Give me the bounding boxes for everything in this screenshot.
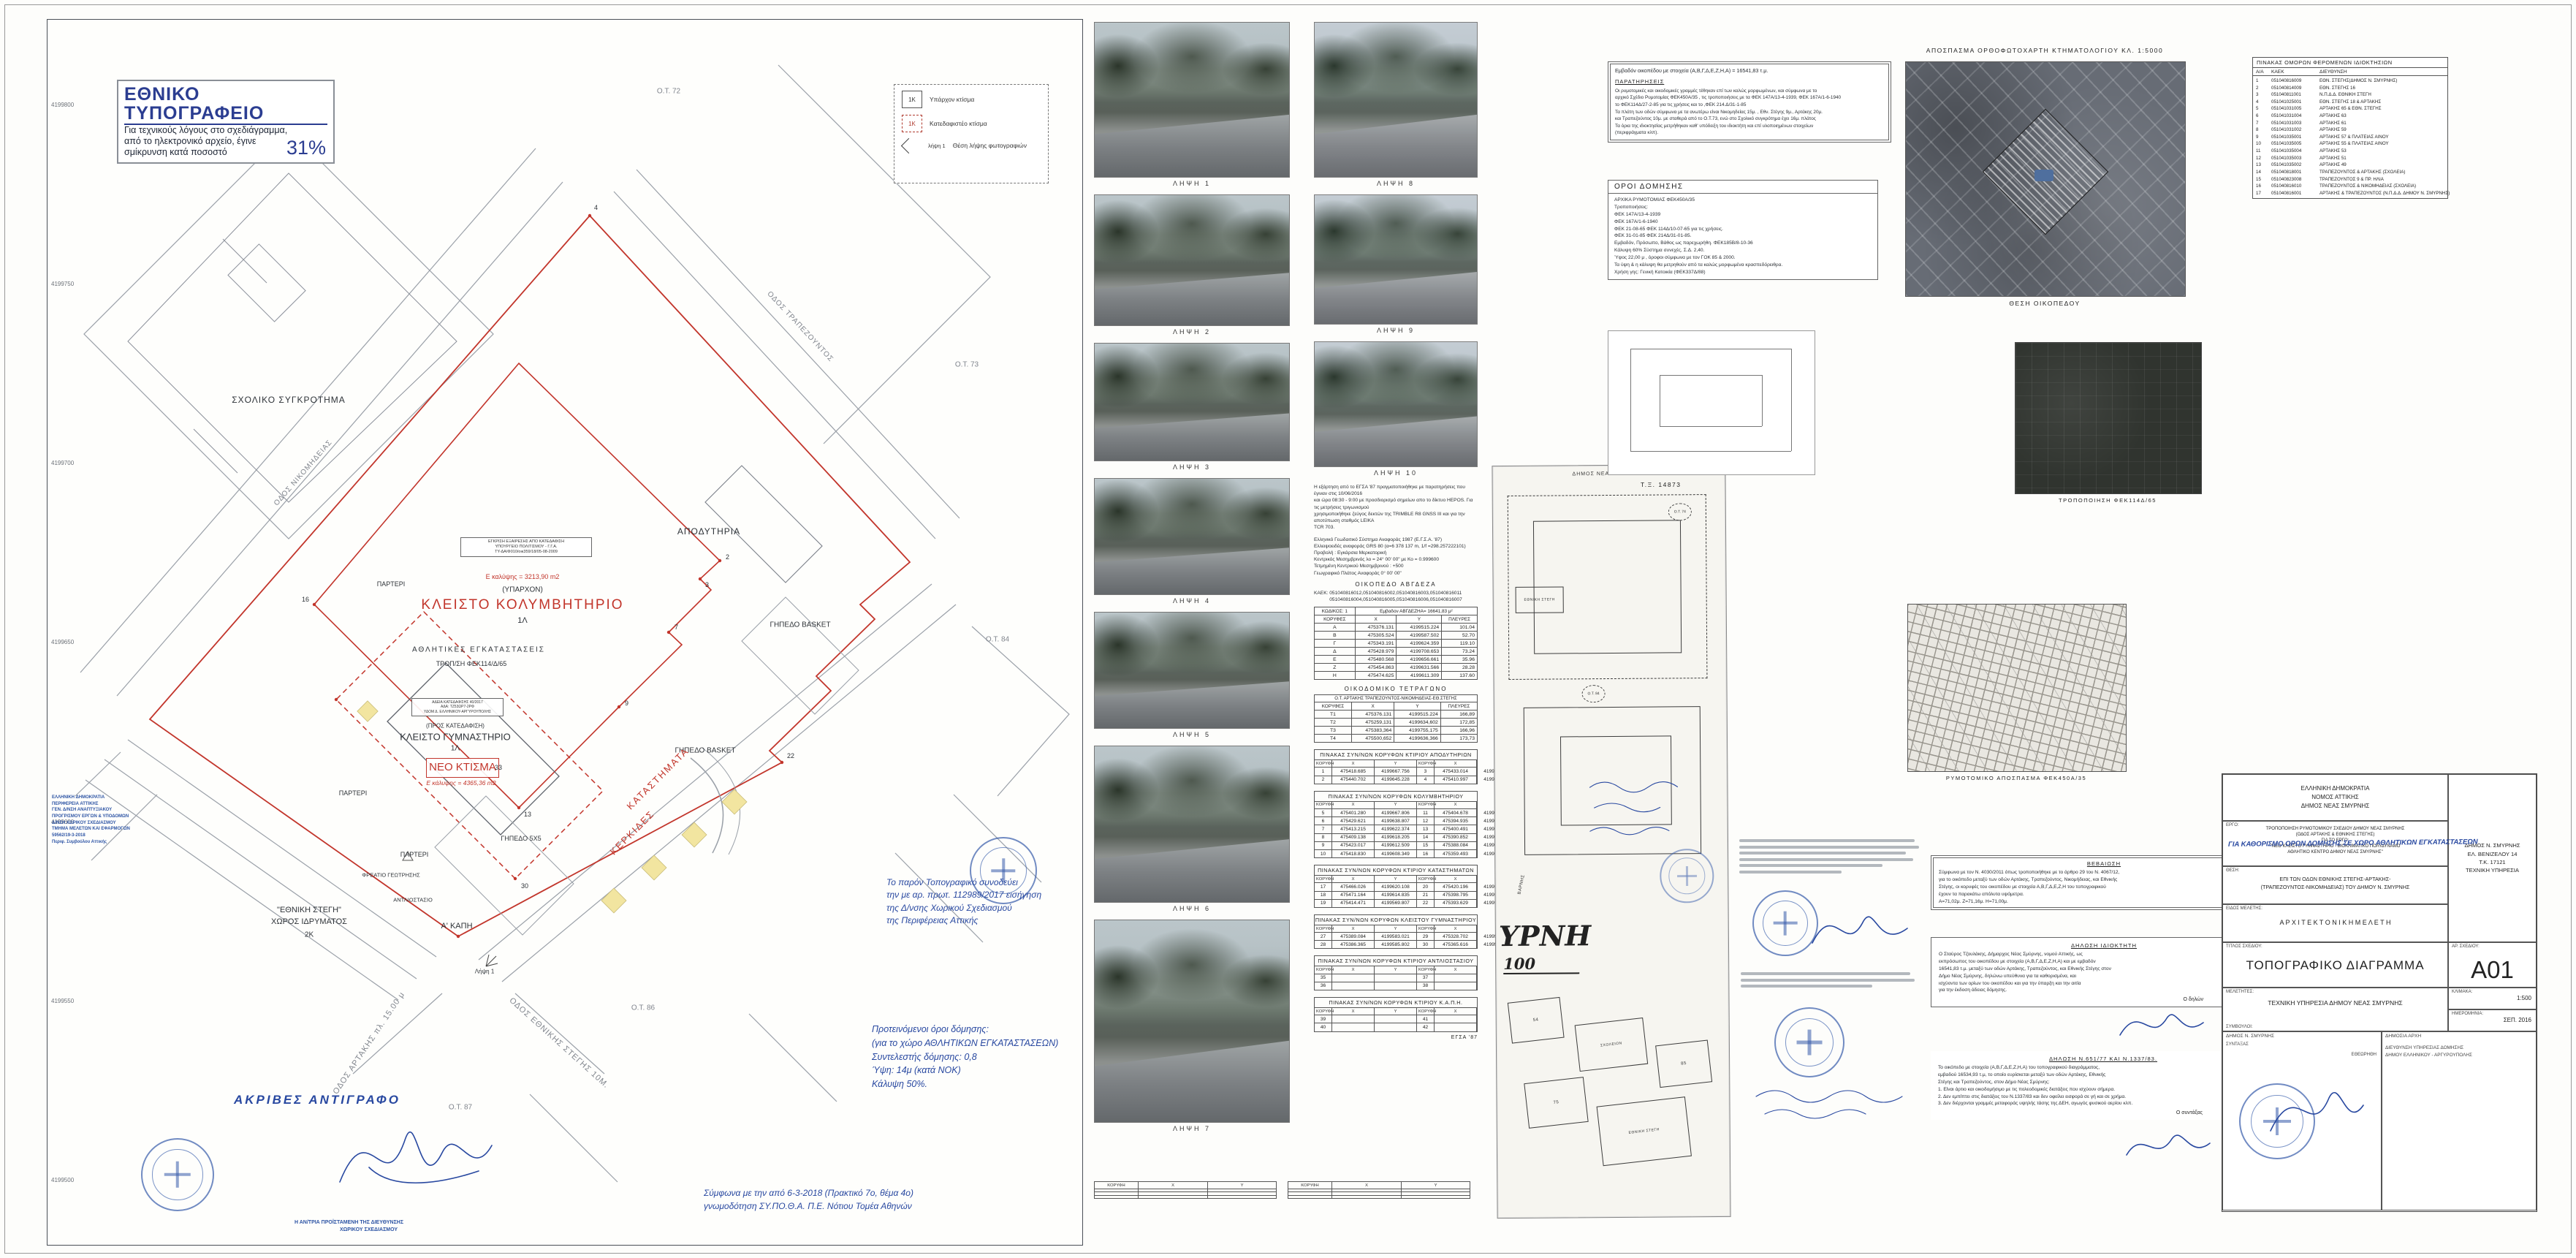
vertex-number: 4: [594, 204, 598, 211]
note-line: Ύψη: 14μ (κατά ΝΟΚ): [872, 1064, 1058, 1077]
vertex-row: 10475418.830 4199608.34916 475359.493419…: [1314, 849, 1478, 858]
office-line: 59562/19-3-2018: [52, 833, 162, 839]
project-line: ΤΡΟΠΟΠΟΙΗΣΗ ΡΥΜΟΤΟΜΙΚΟΥ ΣΧΕΔΙΟΥ ΔΗΜΟΥ ΝΕ…: [2223, 826, 2447, 832]
photo-item: ΛΗΨΗ 7: [1094, 920, 1290, 1132]
vertex-table: ΠΙΝΑΚΑΣ ΣΥΝ/ΝΩΝ ΚΟΡΥΦΩΝ ΚΤΙΡΙΟΥ ΑΝΤΛΙΟΣΤ…: [1314, 955, 1478, 990]
adjacent-row: 8 051041031002 ΑΡΤΑΚΗΣ 59: [2253, 126, 2447, 134]
vertex-table: ΠΙΝΑΚΑΣ ΣΥΝ/ΝΩΝ ΚΟΡΥΦΩΝ ΚΟΛΥΜΒΗΤΗΡΙΟΥ ΚΟ…: [1314, 791, 1478, 858]
owner-line: ΤΕΧΝΙΚΗ ΥΠΗΡΕΣΙΑ: [2449, 866, 2536, 874]
block-coordinates-table: Ο.Τ. ΑΡΤΑΚΗΣ ΤΡΑΠΕΖΟΥΝΤΟΣ-ΝΙΚΟΜΗΔΕΙΑΣ-ΕΘ…: [1314, 694, 1478, 743]
date-label: ΗΜΕΡΟΜΗΝΙΑ:: [2452, 1012, 2483, 1016]
note-line: Προτεινόμενοι όροι δόμησης:: [872, 1023, 1058, 1037]
grid-label: 4199750: [51, 281, 74, 287]
adjacent-row: 17 051040816001 ΑΡΤΑΚΗΣ & ΤΡΑΠΕΖΟΥΝΤΟΣ (…: [2253, 190, 2447, 197]
photo-item: ΛΗΨΗ 4: [1094, 478, 1290, 605]
note-line: (για το χώρο ΑΘΛΗΤΙΚΩΝ ΕΓΚΑΤΑΣΤΑΣΕΩΝ): [872, 1037, 1058, 1050]
datum-line: Κεντρικός Μεσημβρινός λο = 24° 00' 00" μ…: [1314, 556, 1478, 563]
exemption-approval-box: ΕΓΚΡΙΣΗ ΕΞΑΙΡΕΣΗΣ ΑΠΟ ΚΑΤΕΔΑΦΙΣΗ ΥΠΟΥΡΓΕ…: [460, 537, 592, 557]
photo-caption: ΛΗΨΗ 10: [1314, 469, 1478, 477]
declaration-line: ισχύοντα των ορίων του οικοπέδου και για…: [1939, 980, 2269, 988]
vertex-table-header: ΚΟΡΥΦΗX YΚΟΡΥΦΗ XY: [1314, 1007, 1478, 1015]
parcel-row: Ε475480.5684199656.66135.96: [1315, 656, 1478, 664]
old-school-label: ΣΧΟΛΕΙΟΝ: [1600, 1041, 1622, 1047]
adjacent-row: 10 051041035005 ΑΡΤΑΚΗΣ 55 & ΠΛΑΤΕΙΑΣ ΑΙ…: [2253, 140, 2447, 148]
authors-value: ΤΕΧΝΙΚΗ ΥΠΗΡΕΣΙΑ ΔΗΜΟΥ ΝΕΑΣ ΣΜΥΡΝΗΣ: [2223, 999, 2447, 1008]
author-role: ΣΥΝΤΑΞΑΣ: [2226, 1042, 2249, 1047]
note-line: Το παρόν Τοπογραφικό συνοδεύει: [886, 876, 1041, 889]
pool-building-label: ΚΛΕΙΣΤΟ ΚΟΛΥΜΒΗΤΗΡΙΟ: [421, 597, 623, 613]
mini-row: [1094, 1189, 1277, 1191]
vertex-table-title: ΠΙΝΑΚΑΣ ΣΥΝ/ΝΩΝ ΚΟΡΥΦΩΝ ΚΟΛΥΜΒΗΤΗΡΙΟΥ: [1314, 791, 1478, 801]
vertex-row: 9475423.017 4199612.50915 475388.0844199…: [1314, 841, 1478, 849]
agency-line: ΔΗΜΟΣ ΝΕΑΣ ΣΜΥΡΝΗΣ: [2223, 802, 2447, 811]
parcel-coordinates-table: ΚΩΔΙΚΟΣ: 1 Εμβαδον ΑΒΓΔΕΖΗΑ= 16641,83 μ²…: [1314, 607, 1478, 680]
photo-caption: ΛΗΨΗ 2: [1094, 328, 1290, 336]
illegible-text-line: [1739, 864, 1882, 867]
datum-line: Γεωγραφικό Πλάτος Αναφοράς 0° 00' 00": [1314, 570, 1478, 577]
illegible-text-line: [1739, 858, 1913, 861]
photo-item: ΛΗΨΗ 3: [1094, 343, 1290, 471]
adjacent-row: 3 051040811001 Ν.Π.Δ.Δ. ΕΘΝΙΚΗ ΣΤΕΓΗ: [2253, 91, 2447, 99]
drawing-title-label: ΤΙΤΛΟΣ ΣΧΕΔΙΟΥ:: [2226, 944, 2262, 949]
block-subtitle: Ο.Τ. ΑΡΤΑΚΗΣ ΤΡΑΠΕΖΟΥΝΤΟΣ-ΝΙΚΟΜΗΔΕΙΑΣ-ΕΘ…: [1315, 695, 1478, 702]
declaration-line: Δήμο Νέας Σμύρνης, δηλώνω υπεύθυνα για τ…: [1939, 973, 2269, 980]
observation-line: αρχικό Σχέδιο Ρυμοτομίας ΦΕΚ450Α/35 , τι…: [1615, 94, 1884, 102]
round-stamp: [1660, 849, 1714, 903]
author-org: ΔΗΜΟΣ Ν. ΣΜΥΡΝΗΣ: [2226, 1034, 2274, 1039]
note-line: της Περιφέρειας Αττικής: [886, 914, 1041, 927]
vertex-number: 9: [625, 700, 628, 707]
scale-cell: ΚΛΙΜΑΚΑ: 1:500: [2448, 988, 2537, 1009]
drawing-title: ΤΟΠΟΓΡΑΦΙΚΟ ΔΙΑΓΡΑΜΜΑ: [2223, 956, 2447, 975]
grid-label: 4199550: [51, 998, 74, 1004]
pump-station-label: ΑΝΤΛΙΟΣΤΑΣΙΟ: [393, 897, 433, 903]
adjacent-row: 11 051041035004 ΑΡΤΑΚΗΣ 53: [2253, 148, 2447, 155]
vertex-row: 17475466.026 4199620.10820 475420.196419…: [1314, 882, 1478, 890]
certification-line: Σύμφωνα με τον Ν. 4030/2011 όπως τροποπο…: [1939, 869, 2269, 876]
project-label: ΕΡΓΟ:: [2226, 823, 2239, 827]
adjacent-row: 9 051041035001 ΑΡΤΑΚΗΣ 57 & ΠΛΑΤΕΙΑΣ ΑΙΝ…: [2253, 134, 2447, 141]
adjacent-row: 13 051041035002 ΑΡΤΑΚΗΣ 49: [2253, 162, 2447, 169]
signatory-title-line2: ΧΩΡΙΚΟΥ ΣΧΕΔΙΑΣΜΟΥ: [340, 1227, 398, 1232]
printing-office-notice: ΕΘΝΙΚΟ ΤΥΠΟΓΡΑΦΕΙΟ Για τεχνικούς λόγους …: [117, 80, 335, 164]
engineer-declaration-line: Στέγης και Τραπεζούντος, στον Δήμο Νέας …: [1938, 1079, 2268, 1086]
building-terms-line: Ύψος 22,00 μ , όροφοι σύμφωνα με τον ΓΟΚ…: [1614, 254, 1872, 262]
reduction-percent: 31%: [286, 137, 326, 159]
block-label-ot73: Ο.Τ. 73: [955, 361, 979, 369]
date-cell: ΗΜΕΡΟΜΗΝΙΑ: ΣΕΠ. 2016: [2448, 1009, 2537, 1031]
owner-cell: ΔΗΜΟΣ Ν. ΣΜΥΡΝΗΣΕΛ. ΒΕΝΙΖΕΛΟΥ 14Τ.Κ. 171…: [2448, 774, 2537, 942]
declarant-signoff: Ο δηλών: [1939, 997, 2269, 1002]
photo-column-left: ΛΗΨΗ 1 ΛΗΨΗ 2 ΛΗΨΗ 3 ΛΗΨΗ 4 ΛΗΨΗ 5: [1094, 22, 1290, 1140]
planter-label: ΠΑΡΤΕΡΙ: [339, 789, 368, 797]
survey-line: Η εξάρτηση από το ΕΓΣΑ '87 πραγματοποιήθ…: [1314, 484, 1478, 497]
note-line: Συντελεστής δόμησης: 0,8: [872, 1050, 1058, 1064]
handwritten-annotation: [1750, 1082, 1911, 1126]
old-block-75: 75: [1553, 1100, 1559, 1105]
author-signature-cell: ΔΗΜΟΣ Ν. ΣΜΥΡΝΗΣ ΣΥΝΤΑΞΑΣ ΕΘΕΩΡΗΘΗ: [2222, 1031, 2382, 1210]
ethniki-stegi-label: "ΕΘΝΙΚΗ ΣΤΕΓΗ": [277, 906, 341, 914]
grid-label: 4199700: [51, 460, 74, 466]
vertex-number: 2: [726, 553, 729, 561]
photo-caption: ΛΗΨΗ 9: [1314, 327, 1478, 334]
photo-item: ΛΗΨΗ 10: [1314, 341, 1478, 477]
handwritten-note-terms: Προτεινόμενοι όροι δόμησης:(για το χώρο …: [872, 1023, 1058, 1091]
photo-position-icon: [902, 139, 921, 152]
orthophoto-title: ΑΠΟΣΠΑΣΜΑ ΟΡΘΟΦΩΤΟΧΑΡΤΗ ΚΤΗΜΑΤΟΛΟΓΙΟΥ ΚΛ…: [1905, 47, 2184, 54]
illegible-text-line: [1739, 846, 1919, 849]
vertex-table: ΠΙΝΑΚΑΣ ΣΥΝ/ΝΩΝ ΚΟΡΥΦΩΝ ΚΤΙΡΙΟΥ Κ.Α.Π.Η.…: [1314, 997, 1478, 1032]
vertex-tables: ΠΙΝΑΚΑΣ ΣΥΝ/ΝΩΝ ΚΟΡΥΦΩΝ ΚΤΙΡΙΟΥ ΑΠΟΔΥΤΗΡ…: [1314, 749, 1478, 1031]
grid-coordinate-labels: 4199800419975041997004199650419960041995…: [51, 102, 74, 1183]
drawing-sheet: 4199800419975041997004199650419960041995…: [0, 0, 2576, 1258]
mini-table-left: ΚΟΡΥΦΗ X Y: [1094, 1181, 1277, 1199]
old-ot74: Ο.Τ. 74: [1668, 503, 1692, 520]
agency-line: ΕΛΛΗΝΙΚΗ ΔΗΜΟΚΡΑΤΙΑ: [2223, 784, 2447, 793]
grid-label: 4199800: [51, 102, 74, 108]
building-terms-line: Κάλυψη 60% Σύστημα συνεχές, Σ.Δ. 2,40.: [1614, 247, 1872, 254]
round-stamp: [141, 1138, 214, 1211]
existing-building-symbol: 1Κ: [902, 91, 922, 108]
stegi-floors-label: 2Κ: [305, 931, 314, 939]
vertex-number: 3: [705, 581, 709, 588]
note-line: την με αρ. πρωτ. 112989/2017 εισήγηση: [886, 889, 1041, 901]
vertex-row: 36 38: [1314, 982, 1478, 990]
vertex-rows: 1475418.685 4199667.7563 475433.01441996…: [1314, 767, 1478, 784]
signature: [2121, 1124, 2216, 1168]
signatory-title-line1: Η ΑΝ/ΤΡΙΑ ΠΡΟΪΣΤΑΜΕΝΗ ΤΗΣ ΔΙΕΥΘΥΝΣΗΣ: [295, 1220, 403, 1225]
building-terms-line: ΦΕΚ 31-01-85 ΦΕΚ 214Δ/31-01-85.: [1614, 232, 1872, 240]
topographic-map-panel: 4199800419975041997004199650419960041995…: [47, 19, 1083, 1246]
notice-line: Για τεχνικούς λόγους στο σχεδιάγραμμα,: [124, 125, 327, 136]
block-row: Τ4475500,6524199636,366173,73: [1315, 735, 1478, 743]
handwritten-annotation: [1582, 772, 1707, 860]
signature: [325, 1094, 501, 1219]
vertex-table-header: ΚΟΡΥΦΗX YΚΟΡΥΦΗ XY: [1314, 759, 1478, 767]
vertex-number: 22: [787, 752, 794, 759]
office-line: ΠΡΟΓΡ/ΣΜΟΥ ΕΡΓΩΝ & ΥΠΟΔΟΜΩΝ: [52, 814, 162, 820]
datum-caption: ΕΓΣΑ '87: [1314, 1035, 1478, 1040]
office-line: ΤΜΗΜΑ ΜΕΛΕΤΩΝ ΚΑΙ ΕΦΑΡΜΟΓΩΝ: [52, 826, 162, 833]
datum-line: Τετμημένη Κεντρικού Μεσημβρινού : +500: [1314, 563, 1478, 569]
vertex-rows: 5475401.280 4199667.80611 475404.6784199…: [1314, 808, 1478, 858]
photo-item: ΛΗΨΗ 2: [1094, 194, 1290, 336]
approval-line: ΥΠΟΥΡΓΕΙΟ ΠΟΛΙΤΙΣΜΟΥ - Γ.Γ.Α.: [463, 545, 589, 550]
vertex-table-title: ΠΙΝΑΚΑΣ ΣΥΝ/ΝΩΝ ΚΟΡΥΦΩΝ ΚΤΙΡΙΟΥ ΚΑΤΑΣΤΗΜ…: [1314, 865, 1478, 875]
engineer-declaration-line: εμβαδού 16534,93 τ.μ, το οποίο ευρίσκετα…: [1938, 1072, 2268, 1079]
building-terms-line: ΦΕΚ 21-08-65 ΦΕΚ 114Δ/10-07-65 για τις χ…: [1614, 226, 1872, 233]
approval-line: ΤΥ-ΔΑ/Φ010/οικ359/18/05-08-2009: [463, 550, 589, 555]
grid-label: 4199500: [51, 1177, 74, 1183]
mini-header: Y: [1208, 1182, 1276, 1189]
illegible-text-line: [1741, 972, 1910, 975]
authors-cell: ΜΕΛΕΤΗΤΕΣ: ΤΕΧΝΙΚΗ ΥΠΗΡΕΣΙΑ ΔΗΜΟΥ ΝΕΑΣ Σ…: [2222, 988, 2448, 1031]
observation-line: (περιφράγματα κλπ).: [1615, 129, 1884, 137]
old-scale-fragment: 100: [1503, 954, 1579, 974]
block-table-title: ΟΙΚΟΔΟΜΙΚΟ ΤΕΤΡΑΓΩΝΟ: [1314, 686, 1478, 692]
building-terms-line: Χρήση γης: Γενική Κατοικία (ΦΕΚ337Δ/88): [1614, 269, 1872, 276]
engineer-declaration-line: 1. Είναι άρτιο και οικοδομήσιμο με τις π…: [1938, 1086, 2268, 1094]
photo-caption: ΛΗΨΗ 4: [1094, 597, 1290, 605]
school-complex-label: ΣΧΟΛΙΚΟ ΣΥΓΚΡΟΤΗΜΑ: [232, 395, 346, 405]
fek-scan-image: [2015, 342, 2202, 494]
vertex-row: 6475429.621 4199638.80712 475394.9354199…: [1314, 816, 1478, 825]
signature: [2260, 1072, 2369, 1153]
mini-row: [1288, 1191, 1470, 1194]
photo-position-label: Θέση λήψης φωτογραφιών: [953, 142, 1027, 149]
datum-line: Ελλειψοειδές αναφοράς GRS 80 (α=6 378 13…: [1314, 543, 1478, 550]
existing-building-label: Υπάρχον κτίσμα: [930, 96, 974, 103]
study-type-label: ΕΙΔΟΣ ΜΕΛΕΤΗΣ:: [2226, 906, 2262, 911]
certification-line: έχουν τα παρακάτω απόλυτα υψόμετρα.: [1939, 891, 2269, 898]
observation-line: Τα όρια της ιδιοκτησίας μετρήθηκαν καθ' …: [1615, 123, 1884, 130]
approvals-zone-2: [1741, 972, 1916, 991]
kapi-label: Α' ΚΑΠΗ: [441, 922, 472, 931]
note-line: Σύμφωνα με την από 6-3-2018 (Πρακτικό 7ο…: [704, 1186, 913, 1200]
vertex-table-title: ΠΙΝΑΚΑΣ ΣΥΝ/ΝΩΝ ΚΟΡΥΦΩΝ ΚΤΙΡΙΟΥ Κ.Α.Π.Η.: [1314, 997, 1478, 1007]
vertex-row: 39 41: [1314, 1015, 1478, 1023]
scale-value: 1:500: [2449, 994, 2536, 1003]
street-photo: [1094, 478, 1290, 595]
block-label-ot84: Ο.Τ. 84: [986, 636, 1009, 644]
vertex-table-header: ΚΟΡΥΦΗX YΚΟΡΥΦΗ XY: [1314, 925, 1478, 932]
vertex-row: 28475386.365 4199585.80230 475365.616419…: [1314, 940, 1478, 949]
building-terms-line: ΦΕΚ 167Α/1-6-1940: [1614, 219, 1872, 226]
parcel-code: ΚΩΔΙΚΟΣ: 1: [1315, 607, 1356, 615]
declaration-title: ΔΗΛΩΣΗ ΙΔΙΟΚΤΗΤΗ: [1939, 942, 2269, 949]
note-line: της Δ/νσης Χωρικού Σχεδιασμού: [886, 902, 1041, 914]
region-office-stamp-text: ΕΛΛΗΝΙΚΗ ΔΗΜΟΚΡΑΤΙΑΠΕΡΙΦΕΡΕΙΑ ΑΤΤΙΚΗΣΓΕΝ…: [52, 795, 162, 846]
study-type-value: Α Ρ Χ Ι Τ Ε Κ Τ Ο Ν Ι Κ Η Μ Ε Λ Ε Τ Η: [2223, 918, 2447, 928]
building-terms-title: ΟΡΟΙ ΔΟΜΗΣΗΣ: [1608, 181, 1877, 194]
grid-label: 4199650: [51, 639, 74, 645]
street-photo: [1094, 22, 1290, 178]
street-photo: [1314, 341, 1478, 467]
photo-item: ΛΗΨΗ 5: [1094, 612, 1290, 738]
title-block: ΕΛΛΗΝΙΚΗ ΔΗΜΟΚΡΑΤΙΑΝΟΜΟΣ ΑΤΤΙΚΗΣΔΗΜΟΣ ΝΕ…: [2222, 773, 2537, 1212]
planter-label: ΠΑΡΤΕΡΙ: [377, 580, 406, 588]
authors-label: ΜΕΛΕΤΗΤΕΣ:: [2226, 990, 2254, 994]
photo-item: ΛΗΨΗ 6: [1094, 746, 1290, 912]
pool-blue-roof: [2034, 170, 2053, 181]
permit-line: ΥΔΟΜ Δ. ΕΛΛΗΝΙΚΟΥ-ΑΡΓΥΡΟΥΠΟΛΗΣ: [414, 710, 501, 714]
gym-label: ΚΛΕΙΣΤΟ ΓΥΜΝΑΣΤΗΡΙΟ: [400, 732, 511, 743]
project-line: ΑΘΛΗΤΙΚΟ ΚΕΝΤΡΟ ΔΗΜΟΥ ΝΕΑΣ ΣΜΥΡΝΗΣ": [2223, 849, 2447, 855]
existing-tag: (ΥΠΑΡΧΟΝ): [502, 586, 543, 594]
parcel-title: ΟΙΚΟΠΕΔΟ ΑΒΓΔΕΖΑ: [1314, 581, 1478, 588]
illegible-text-line: [1739, 871, 1842, 874]
signature: [1805, 899, 1915, 965]
building-terms-line: Εμβαδόν, Πρόσωπο, Βάθος ως παρεχωρήθη. Φ…: [1614, 240, 1872, 247]
street-photo: [1094, 343, 1290, 461]
note-line: γνωμοδότηση ΣΥ.ΠΟ.Θ.Α. Π.Ε. Νότιου Τομέα…: [704, 1200, 913, 1213]
adjacent-row: 1 051040816009 ΕΘΝ. ΣΤΕΓΗΣ(ΔΗΜΟΣ Ν. ΣΜΥΡ…: [2253, 77, 2447, 85]
tx-label: Τ.Ξ. 14873: [1641, 481, 1779, 488]
certification-line: για το οικόπεδο μεταξύ των οδών Αρτάκης,…: [1939, 876, 2269, 884]
adjacent-row: 5 051041031005 ΑΡΤΑΚΗΣ 65 & ΕΘΝ. ΣΤΕΓΗΣ: [2253, 105, 2447, 113]
observation-line: το ΦΕΚ114Δ/27-2-85 για τις χρήσεις και τ…: [1615, 102, 1884, 109]
photo-caption: ΛΗΨΗ 3: [1094, 463, 1290, 471]
vertex-row: 7475413.215 4199622.37413 475400.4914199…: [1314, 825, 1478, 833]
photo-column-right: ΛΗΨΗ 8 ΛΗΨΗ 9 ΛΗΨΗ 10 Η εξάρτηση από το …: [1314, 22, 1478, 1040]
vertex-row: 19475414.471 4199569.80722 475393.629419…: [1314, 899, 1478, 908]
declaration-line: Ο Σταύρος Τζουλάκης, Δήμαρχος Νέας Σμύρν…: [1939, 951, 2269, 958]
pool-coverage-label: Ε καλύψης = 3213,90 m2: [486, 573, 560, 580]
adjacent-row: 4 051041025001 ΕΘΝ. ΣΤΕΓΗΣ 18 & ΑΡΤΑΚΗΣ: [2253, 99, 2447, 106]
to-be-demolished-tag: (ΠΡΟΣ ΚΑΤΕΔΑΦΙΣΗ): [426, 723, 485, 730]
notice-line: σμίκρυνση κατά ποσοστό: [124, 147, 234, 158]
vertex-table-title: ΠΙΝΑΚΑΣ ΣΥΝ/ΝΩΝ ΚΟΡΥΦΩΝ ΚΤΙΡΙΟΥ ΑΠΟΔΥΤΗΡ…: [1314, 749, 1478, 759]
authority-cell: ΔΗΜΟΣΙΑ ΑΡΧΗ ΔΙΕΥΘΥΝΣΗ ΥΠΗΡΕΣΙΑΣ ΔΟΜΗΣΗΣ…: [2382, 1031, 2537, 1210]
observation-line: Οι ρυμοτομικές και οικοδομικές γραμμές τ…: [1615, 88, 1884, 95]
adjacent-owners-table: ΠΙΝΑΚΑΣ ΟΜΟΡΩΝ ΦΕΡΟΜΕΝΩΝ ΙΔΙΟΚΤΗΣΙΩΝ Α/Α…: [2252, 57, 2448, 199]
block-row: Τ3475383,3644199755,175166,96: [1315, 727, 1478, 735]
photo-caption: ΛΗΨΗ 5: [1094, 731, 1290, 738]
building-terms-line: Τα ύψη & η κάλυψη θα μετρηθούν από τα κα…: [1614, 262, 1872, 269]
vertex-rows: 17475466.026 4199620.10820 475420.196419…: [1314, 882, 1478, 908]
five-a-side-label: ΓΗΠΕΔΟ 5Χ5: [501, 835, 541, 842]
mini-row: [1288, 1189, 1470, 1191]
parcel-row: Η475474.6254199611.309137.60: [1315, 672, 1478, 680]
adjacent-row: 15 051040823008 ΤΡΑΠΕΖΟΥΝΤΟΣ 9 & ΠΡ. ΗΛΙ…: [2253, 176, 2447, 183]
new-building-coverage: Ε κάλυψης = 4365,36 m2: [426, 779, 495, 787]
study-type-cell: ΕΙΔΟΣ ΜΕΛΕΤΗΣ: Α Ρ Χ Ι Τ Ε Κ Τ Ο Ν Ι Κ Η…: [2222, 904, 2448, 942]
adjacent-row: 7 051041031003 ΑΡΤΑΚΗΣ 61: [2253, 120, 2447, 127]
declaration-line: για την έκδοση άδειας δόμησης.: [1939, 987, 2269, 994]
survey-line: και ώρα 08:30 - 9:00 με προσδιορισμό σημ…: [1314, 497, 1478, 510]
block-row: Τ1475376.1314199515.224166,89: [1315, 711, 1478, 719]
vertex-table: ΠΙΝΑΚΑΣ ΣΥΝ/ΝΩΝ ΚΟΡΥΦΩΝ ΚΤΙΡΙΟΥ ΚΑΤΑΣΤΗΜ…: [1314, 865, 1478, 908]
certification-title: ΒΕΒΑΙΩΣΗ: [1939, 860, 2269, 867]
project-line: (ΟΔΟΣ ΑΡΤΑΚΗΣ & ΕΘΝΙΚΗΣ ΣΤΕΓΗΣ): [2223, 832, 2447, 838]
authority-line2: ΔΗΜΟΥ ΕΛΛΗΝΙΚΟΥ - ΑΡΓΥΡΟΥΠΟΛΗΣ: [2385, 1053, 2472, 1058]
vertex-number: 7: [675, 624, 678, 631]
old-varnis-street: ΒΑΡΝΗΣ: [1517, 874, 1525, 895]
agency-line: ΝΟΜΟΣ ΑΤΤΙΚΗΣ: [2223, 793, 2447, 802]
vertex-table-header: ΚΟΡΥΦΗX YΚΟΡΥΦΗ XY: [1314, 966, 1478, 973]
vertex-row: 2475440.702 4199645.2284 475410.99741996…: [1314, 776, 1478, 784]
office-line: ΓΕΝ. Δ/ΝΣΗ ΑΝΑΠΤΥΞΙΑΚΟΥ: [52, 807, 162, 814]
certification-line: Α=71,02μ. Ζ=71,16μ. Η=71,00μ.: [1939, 898, 2269, 906]
adjacent-row: 6 051041031004 ΑΡΤΑΚΗΣ 63: [2253, 113, 2447, 120]
street-photo: [1314, 22, 1478, 178]
location-line: (ΤΡΑΠΕΖΟΥΝΤΟΣ-ΝΙΚΟΜΗΔΕΙΑΣ) ΤΟΥ ΔΗΜΟΥ Ν. …: [2223, 884, 2447, 892]
block-label-ot86: Ο.Τ. 86: [631, 1004, 655, 1012]
orthophoto-caption: ΘΕΣΗ ΟΙΚΟΠΕΔΟΥ: [1905, 300, 2184, 307]
scanned-rymotomia-page: ΔΗΜΟΣ ΝΕΑΣ ΣΜΥΡΝΗΣ ΕΘΝΙΚΗ ΣΤΕΓΗ Ο.Τ. 74 …: [1492, 464, 1730, 1219]
location-cell: ΘΕΣΗ: ΕΠΙ ΤΩΝ ΟΔΩΝ ΕΘΝΙΚΗΣ ΣΤΕΓΗΣ-ΑΡΤΑΚΗ…: [2222, 866, 2448, 904]
mini-header: Y: [1402, 1182, 1470, 1189]
vertex-table-header: ΚΟΡΥΦΗX YΚΟΡΥΦΗ XY: [1314, 801, 1478, 808]
vertex-rows: 35 37 36 38: [1314, 974, 1478, 990]
date-value: ΣΕΠ. 2016: [2449, 1016, 2536, 1025]
parcel-row: Β475305.5244199587.50252.70: [1315, 632, 1478, 640]
photo-item: ΛΗΨΗ 1: [1094, 22, 1290, 187]
vertex-rows: 39 41 40 42: [1314, 1015, 1478, 1031]
datum-description: Ελληνικό Γεωδαιτικό Σύστημα Αναφοράς 198…: [1314, 537, 1478, 577]
vertex-table: ΠΙΝΑΚΑΣ ΣΥΝ/ΝΩΝ ΚΟΡΥΦΩΝ ΚΤΙΡΙΟΥ ΑΠΟΔΥΤΗΡ…: [1314, 749, 1478, 784]
location-label: ΘΕΣΗ:: [2226, 868, 2239, 873]
street-photo: [1094, 612, 1290, 729]
parcel-row: Δ475428.9794199708.65373.24: [1315, 648, 1478, 656]
building-terms-box: ΟΡΟΙ ΔΟΜΗΣΗΣ ΑΡΧΙΚΑ ΡΥΜΟΤΟΜΙΑΣ ΦΕΚ450Α/3…: [1608, 180, 1878, 280]
adjacent-row: 12 051041035003 ΑΡΤΑΚΗΣ 51: [2253, 155, 2447, 162]
datum-line: Προβολή : Εγκάρσια Μερκατορική: [1314, 550, 1478, 556]
scale-label: ΚΛΙΜΑΚΑ:: [2452, 990, 2472, 994]
photos-right: ΛΗΨΗ 8 ΛΗΨΗ 9 ΛΗΨΗ 10: [1314, 22, 1478, 477]
round-stamp: [1774, 1007, 1844, 1077]
photo-caption: ΛΗΨΗ 1: [1094, 180, 1290, 187]
mini-header: X: [1332, 1182, 1402, 1189]
survey-line: TCR 703.: [1314, 524, 1478, 531]
note-line: Κάλυψη 50%.: [872, 1077, 1058, 1091]
mini-header: X: [1139, 1182, 1208, 1189]
block-rows: Τ1475376.1314199515.224166,89 Τ2475259,1…: [1315, 711, 1478, 743]
owner-line: Τ.Κ. 17121: [2449, 858, 2536, 866]
survey-line: χρησιμοποιήθηκε ζεύγος δεκτών της TRIMBL…: [1314, 511, 1478, 524]
owner-line: ΕΛ. ΒΕΝΙΖΕΛΟΥ 14: [2449, 850, 2536, 858]
new-building-label: ΝΕΟ ΚΤΙΣΜΑ: [428, 761, 497, 775]
old-ot84: Ο.Τ. 84: [1582, 685, 1606, 702]
vertex-row: 8475409.138 4199618.20514 475390.8524199…: [1314, 833, 1478, 841]
street-photo: [1094, 194, 1290, 326]
gym-floors-label: 1Λ: [451, 745, 460, 753]
parcel-header-row: ΚΟΡΥΦΕΣX YΠΛΕΥΡΕΣ: [1315, 615, 1478, 624]
signature: [2114, 1002, 2209, 1046]
street-photo: [1314, 194, 1478, 325]
tx-plan-sketch: [1608, 330, 1815, 475]
photo-position-1: Λήψη 1: [475, 969, 495, 975]
map-legend: 1Κ Υπάρχον κτίσμα 1Κ Κατεδαφιστέο κτίσμα…: [894, 84, 1049, 183]
street-photo: [1094, 746, 1290, 903]
fek-amendment-label: ΤΡΟΠ/ΣΗ ΦΕΚ114/Δ/65: [436, 660, 507, 667]
photo-item: ΛΗΨΗ 9: [1314, 194, 1478, 334]
mini-header: ΚΟΡΥΦΗ: [1288, 1182, 1332, 1189]
engineer-declaration-title: ΔΗΛΩΣΗ Ν.651/77 ΚΑΙ Ν.1337/83.: [1938, 1056, 2268, 1062]
orthophoto-image: [1905, 61, 2186, 297]
vertex-table-title: ΠΙΝΑΚΑΣ ΣΥΝ/ΝΩΝ ΚΟΡΥΦΩΝ ΚΛΕΙΣΤΟΥ ΓΥΜΝΑΣΤ…: [1314, 914, 1478, 925]
mini-row: [1094, 1191, 1277, 1194]
photo-caption: ΛΗΨΗ 7: [1094, 1125, 1290, 1132]
agency-cell: ΕΛΛΗΝΙΚΗ ΔΗΜΟΚΡΑΤΙΑΝΟΜΟΣ ΑΤΤΙΚΗΣΔΗΜΟΣ ΝΕ…: [2222, 774, 2448, 821]
parcel-rows: Α475376.1314199515.224101.04 Β475305.524…: [1315, 624, 1478, 680]
old-stegi-label: ΕΘΝΙΚΗ ΣΤΕΓΗ: [1524, 598, 1554, 602]
old-stegi2-label: ΕΘΝΙΚΗ ΣΤΕΓΗ: [1628, 1127, 1660, 1135]
photo-caption: ΛΗΨΗ 6: [1094, 905, 1290, 912]
observation-line: Τα πλάτη των οδών σύμφωνα με τα ανωτέρω …: [1615, 109, 1884, 116]
pool-floors-label: 1Λ: [517, 616, 527, 625]
rymotomiko-caption: ΡΥΜΟΤΟΜΙΚΟ ΑΠΟΣΠΑΣΜΑ ΦΕΚ450Α/35: [1907, 775, 2125, 781]
vertex-row: 1475418.685 4199667.7563 475433.01441996…: [1314, 767, 1478, 775]
location-line: ΕΠΙ ΤΩΝ ΟΔΩΝ ΕΘΝΙΚΗΣ ΣΤΕΓΗΣ-ΑΡΤΑΚΗΣ-: [2223, 876, 2447, 884]
building-terms-line: ΦΕΚ 147Α/13-4-1939: [1614, 211, 1872, 219]
observations-title: ΠΑΡΑΤΗΡΗΣΕΙΣ: [1615, 78, 1884, 85]
engineer-declaration-line: 2. Δεν εμπίπτει στις διατάξεις του Ν.133…: [1938, 1094, 2268, 1101]
building-terms-line: ΑΡΧΙΚΑ ΡΥΜΟΤΟΜΙΑΣ ΦΕΚ450Α/35: [1614, 197, 1872, 204]
fek-caption: ΤΡΟΠΟΠΟΙΗΣΗ ΦΕΚ114Δ/65: [2015, 497, 2200, 504]
parcel-row: Α475376.1314199515.224101.04: [1315, 624, 1478, 632]
planter-label: ΠΑΡΤΕΡΙ: [400, 851, 429, 858]
adjacent-row: 16 051040816010 ΤΡΑΠΕΖΟΥΝΤΟΣ & ΝΙΚΟΜΗΔΕΙ…: [2253, 183, 2447, 190]
illegible-text-line: [1741, 985, 1872, 988]
foundation-area-label: ΧΩΡΟΣ ΙΔΡΥΜΑΤΟΣ: [271, 917, 347, 926]
parcel-row: Γ475343.1914199624.359119.10: [1315, 640, 1478, 648]
office-line: ΕΛΛΗΝΙΚΗ ΔΗΜΟΚΡΑΤΙΑ: [52, 795, 162, 801]
parcel-area: Εμβαδον ΑΒΓΔΕΖΗΑ= 16641,83 μ²: [1355, 607, 1477, 615]
new-building-label-box: ΝΕΟ ΚΤΙΣΜΑ: [426, 758, 499, 778]
mini-row: [1288, 1195, 1470, 1199]
building-terms-line: Τροποποιήσεις:: [1614, 204, 1872, 211]
